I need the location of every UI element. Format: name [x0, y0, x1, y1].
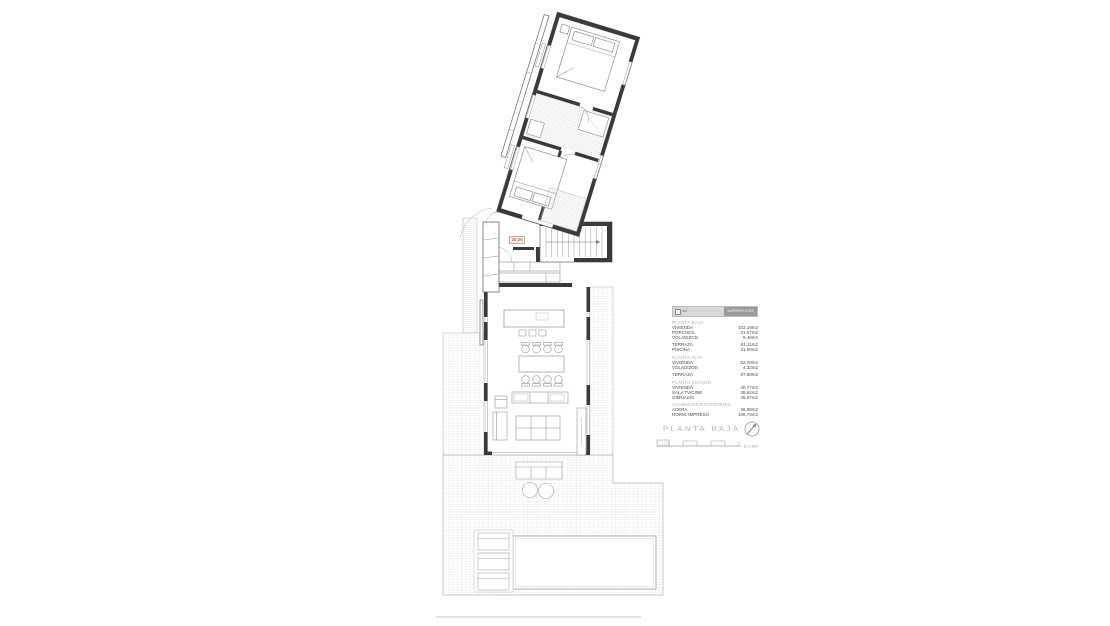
area-row: HORM. IMPRESO106.73m2	[672, 412, 758, 417]
row-value: 4.32m2	[743, 365, 758, 370]
layers-icon	[675, 309, 681, 315]
row-value: 106.73m2	[738, 412, 758, 417]
pool	[513, 536, 656, 589]
row-label: TERRAZA	[672, 372, 693, 377]
legend-section-terraza-alta: TERRAZA87.59m2	[672, 372, 758, 377]
row-label: HORM. IMPRESO	[672, 412, 709, 417]
row-label: PISCINA	[672, 347, 690, 352]
bedroom-wing	[485, 9, 640, 237]
north-compass-icon	[745, 422, 759, 436]
row-label: VOLADIZOS	[672, 365, 698, 370]
legend-section-planta-alta: PLANTA ALTA VIVIENDA82.78m2 VOLADIZOS4.3…	[672, 355, 758, 370]
area-row: TERRAZA87.59m2	[672, 372, 758, 377]
area-row: VOLADIZOS4.32m2	[672, 365, 758, 370]
kitchen-island	[504, 310, 564, 327]
sun-loungers	[474, 530, 513, 592]
area-row: GIMNASIO35.07m2	[672, 395, 758, 400]
bench	[493, 412, 507, 440]
floor-plan-drawing: E 1:100	[0, 0, 1110, 626]
row-value: 31.50m2	[740, 347, 758, 352]
row-label: GIMNASIO	[672, 395, 695, 400]
area-row: VOLADIZOS8.40m2	[672, 335, 758, 340]
row-value: 35.07m2	[740, 395, 758, 400]
legend-section-planta-baja: PLANTA BAJA VIVIENDA103.19m2 PORCHES21.0…	[672, 320, 758, 340]
armchair	[495, 396, 507, 408]
scale-bar: E 1:100	[657, 440, 759, 449]
level-marker: 25.26	[509, 236, 525, 244]
row-value: 8.40m2	[743, 335, 758, 340]
dining-table	[519, 356, 564, 372]
table-title: SUPERFICIES	[724, 307, 757, 316]
legend-section-planta-sotano: PLANTA SOTANO VIVIENDA40.77m2 SALA TV/CI…	[672, 380, 758, 400]
row-value: 87.59m2	[740, 372, 758, 377]
row-label: VOLADIZOS	[672, 335, 698, 340]
garden-wall	[480, 300, 483, 345]
scale-label: E 1:100	[744, 444, 759, 449]
area-table-header: m2 SUPERFICIES	[672, 306, 758, 317]
legend-section-terraza: TERRAZA81.11m2 PISCINA31.50m2	[672, 342, 758, 352]
area-table: m2 SUPERFICIES PLANTA BAJA VIVIENDA103.1…	[672, 306, 758, 417]
page-title: PLANTA BAJA	[663, 424, 741, 433]
floor-plan-sheet: E 1:100 25.26 m2 SUPERFICIES PLANTA BAJA…	[0, 0, 1110, 626]
unit-label: m2	[682, 309, 687, 314]
area-row: PISCINA31.50m2	[672, 347, 758, 352]
legend-section-acabados: ACABADOS EXTERIORES ACERA36.98m2 HORM. I…	[672, 402, 758, 417]
